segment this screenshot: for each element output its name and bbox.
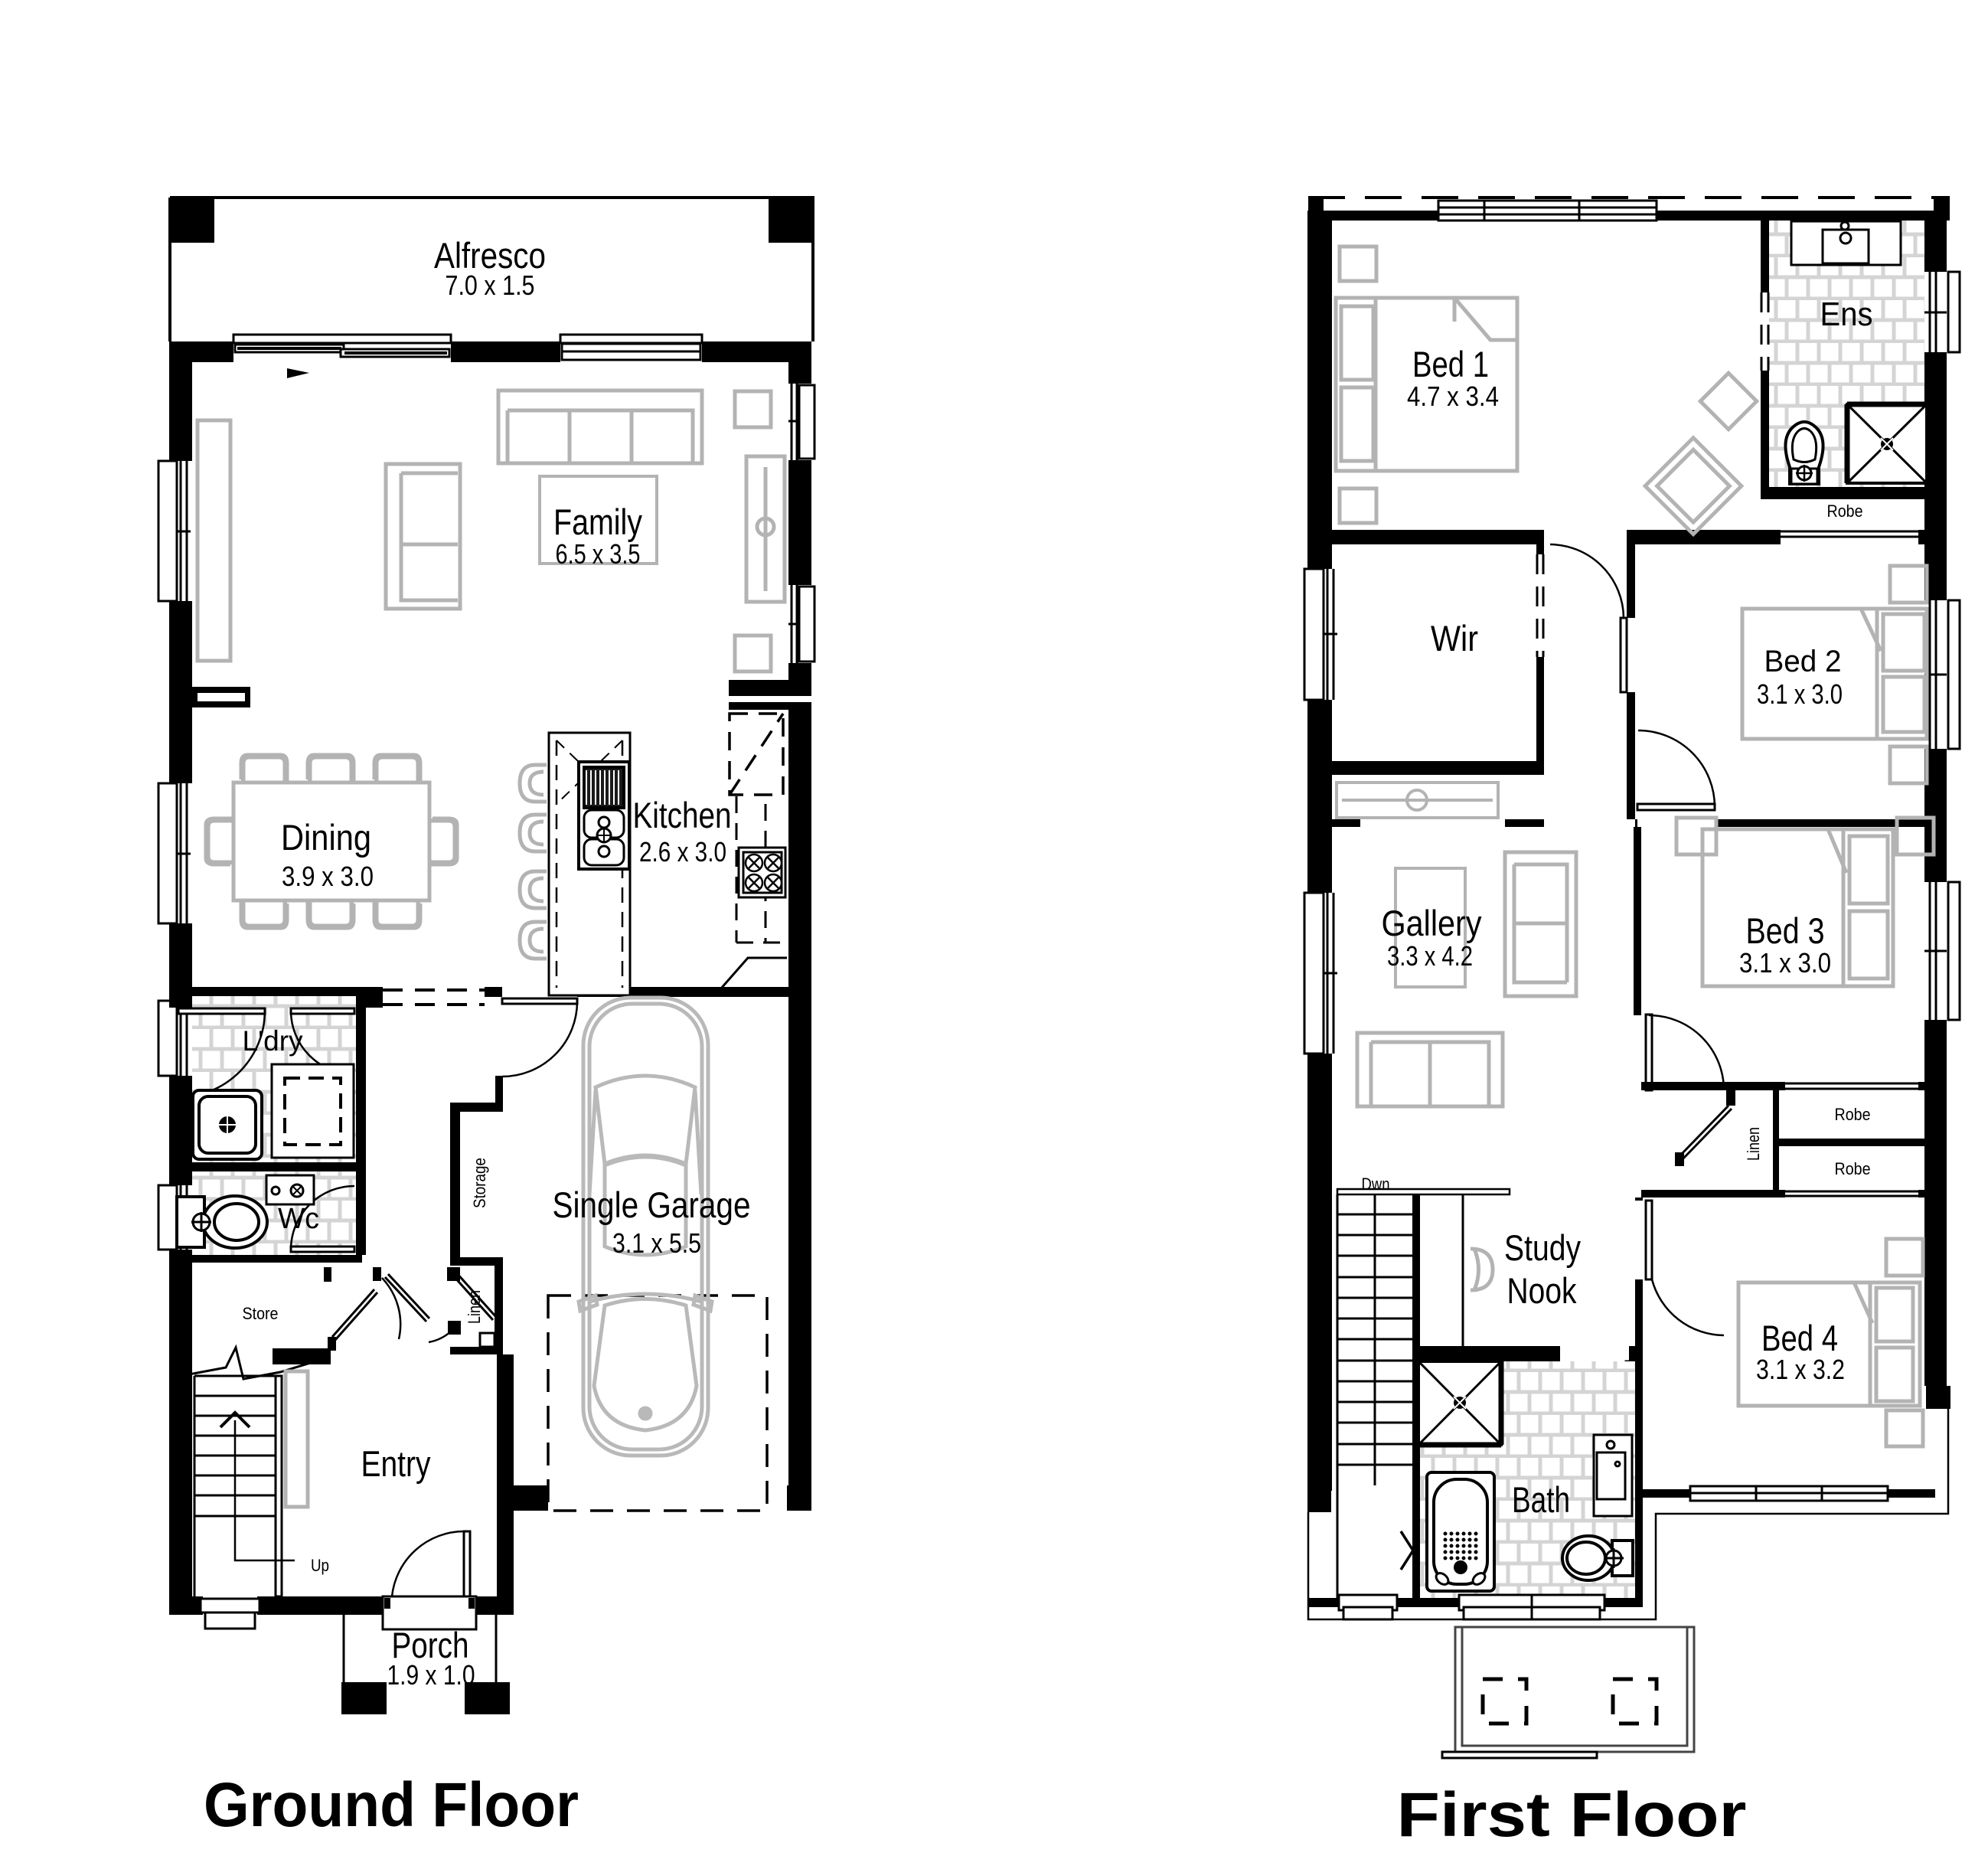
svg-text:3.1 x 5.5: 3.1 x 5.5	[612, 1227, 701, 1259]
svg-text:3.3 x 4.2: 3.3 x 4.2	[1387, 940, 1473, 972]
svg-text:Ground Floor: Ground Floor	[204, 1770, 579, 1840]
svg-text:Bed 3: Bed 3	[1746, 910, 1825, 951]
svg-text:Up: Up	[311, 1556, 329, 1575]
svg-text:Bed 2: Bed 2	[1764, 645, 1842, 678]
svg-text:Dwn: Dwn	[1362, 1175, 1390, 1194]
svg-text:Ens: Ens	[1820, 296, 1873, 333]
svg-text:Gallery: Gallery	[1382, 903, 1482, 943]
svg-text:Entry: Entry	[361, 1443, 431, 1484]
svg-text:Store: Store	[243, 1304, 279, 1323]
svg-text:4.7 x 3.4: 4.7 x 3.4	[1407, 381, 1499, 412]
svg-text:Robe: Robe	[1835, 1159, 1871, 1178]
svg-text:Bath: Bath	[1512, 1479, 1570, 1520]
svg-text:2.6 x 3.0: 2.6 x 3.0	[639, 836, 726, 868]
svg-text:Wir: Wir	[1431, 618, 1478, 658]
svg-text:1.9 x 1.0: 1.9 x 1.0	[387, 1659, 475, 1691]
svg-text:Robe: Robe	[1835, 1105, 1871, 1124]
svg-text:Dining: Dining	[281, 817, 371, 858]
svg-text:First Floor: First Floor	[1397, 1780, 1747, 1850]
svg-text:3.1 x 3.2: 3.1 x 3.2	[1756, 1354, 1845, 1385]
svg-text:Wc: Wc	[278, 1203, 319, 1235]
svg-text:Kitchen: Kitchen	[633, 795, 732, 835]
svg-text:Family: Family	[553, 502, 642, 542]
svg-text:3.1 x 3.0: 3.1 x 3.0	[1739, 947, 1831, 979]
svg-text:Linen: Linen	[1744, 1127, 1763, 1161]
svg-text:3.1 x 3.0: 3.1 x 3.0	[1757, 678, 1843, 710]
svg-text:Robe: Robe	[1827, 502, 1863, 521]
svg-text:7.0 x 1.5: 7.0 x 1.5	[446, 270, 535, 301]
svg-text:Study: Study	[1504, 1227, 1581, 1268]
svg-text:3.9 x 3.0: 3.9 x 3.0	[282, 861, 374, 892]
svg-text:Linen: Linen	[465, 1290, 484, 1324]
svg-text:Nook: Nook	[1507, 1270, 1577, 1311]
svg-text:Storage: Storage	[470, 1158, 489, 1208]
svg-text:Bed 4: Bed 4	[1761, 1318, 1838, 1358]
svg-text:L'dry: L'dry	[243, 1025, 303, 1057]
svg-text:Bed 1: Bed 1	[1412, 344, 1489, 384]
svg-text:Single Garage: Single Garage	[553, 1184, 751, 1225]
svg-text:6.5 x 3.5: 6.5 x 3.5	[556, 538, 641, 570]
